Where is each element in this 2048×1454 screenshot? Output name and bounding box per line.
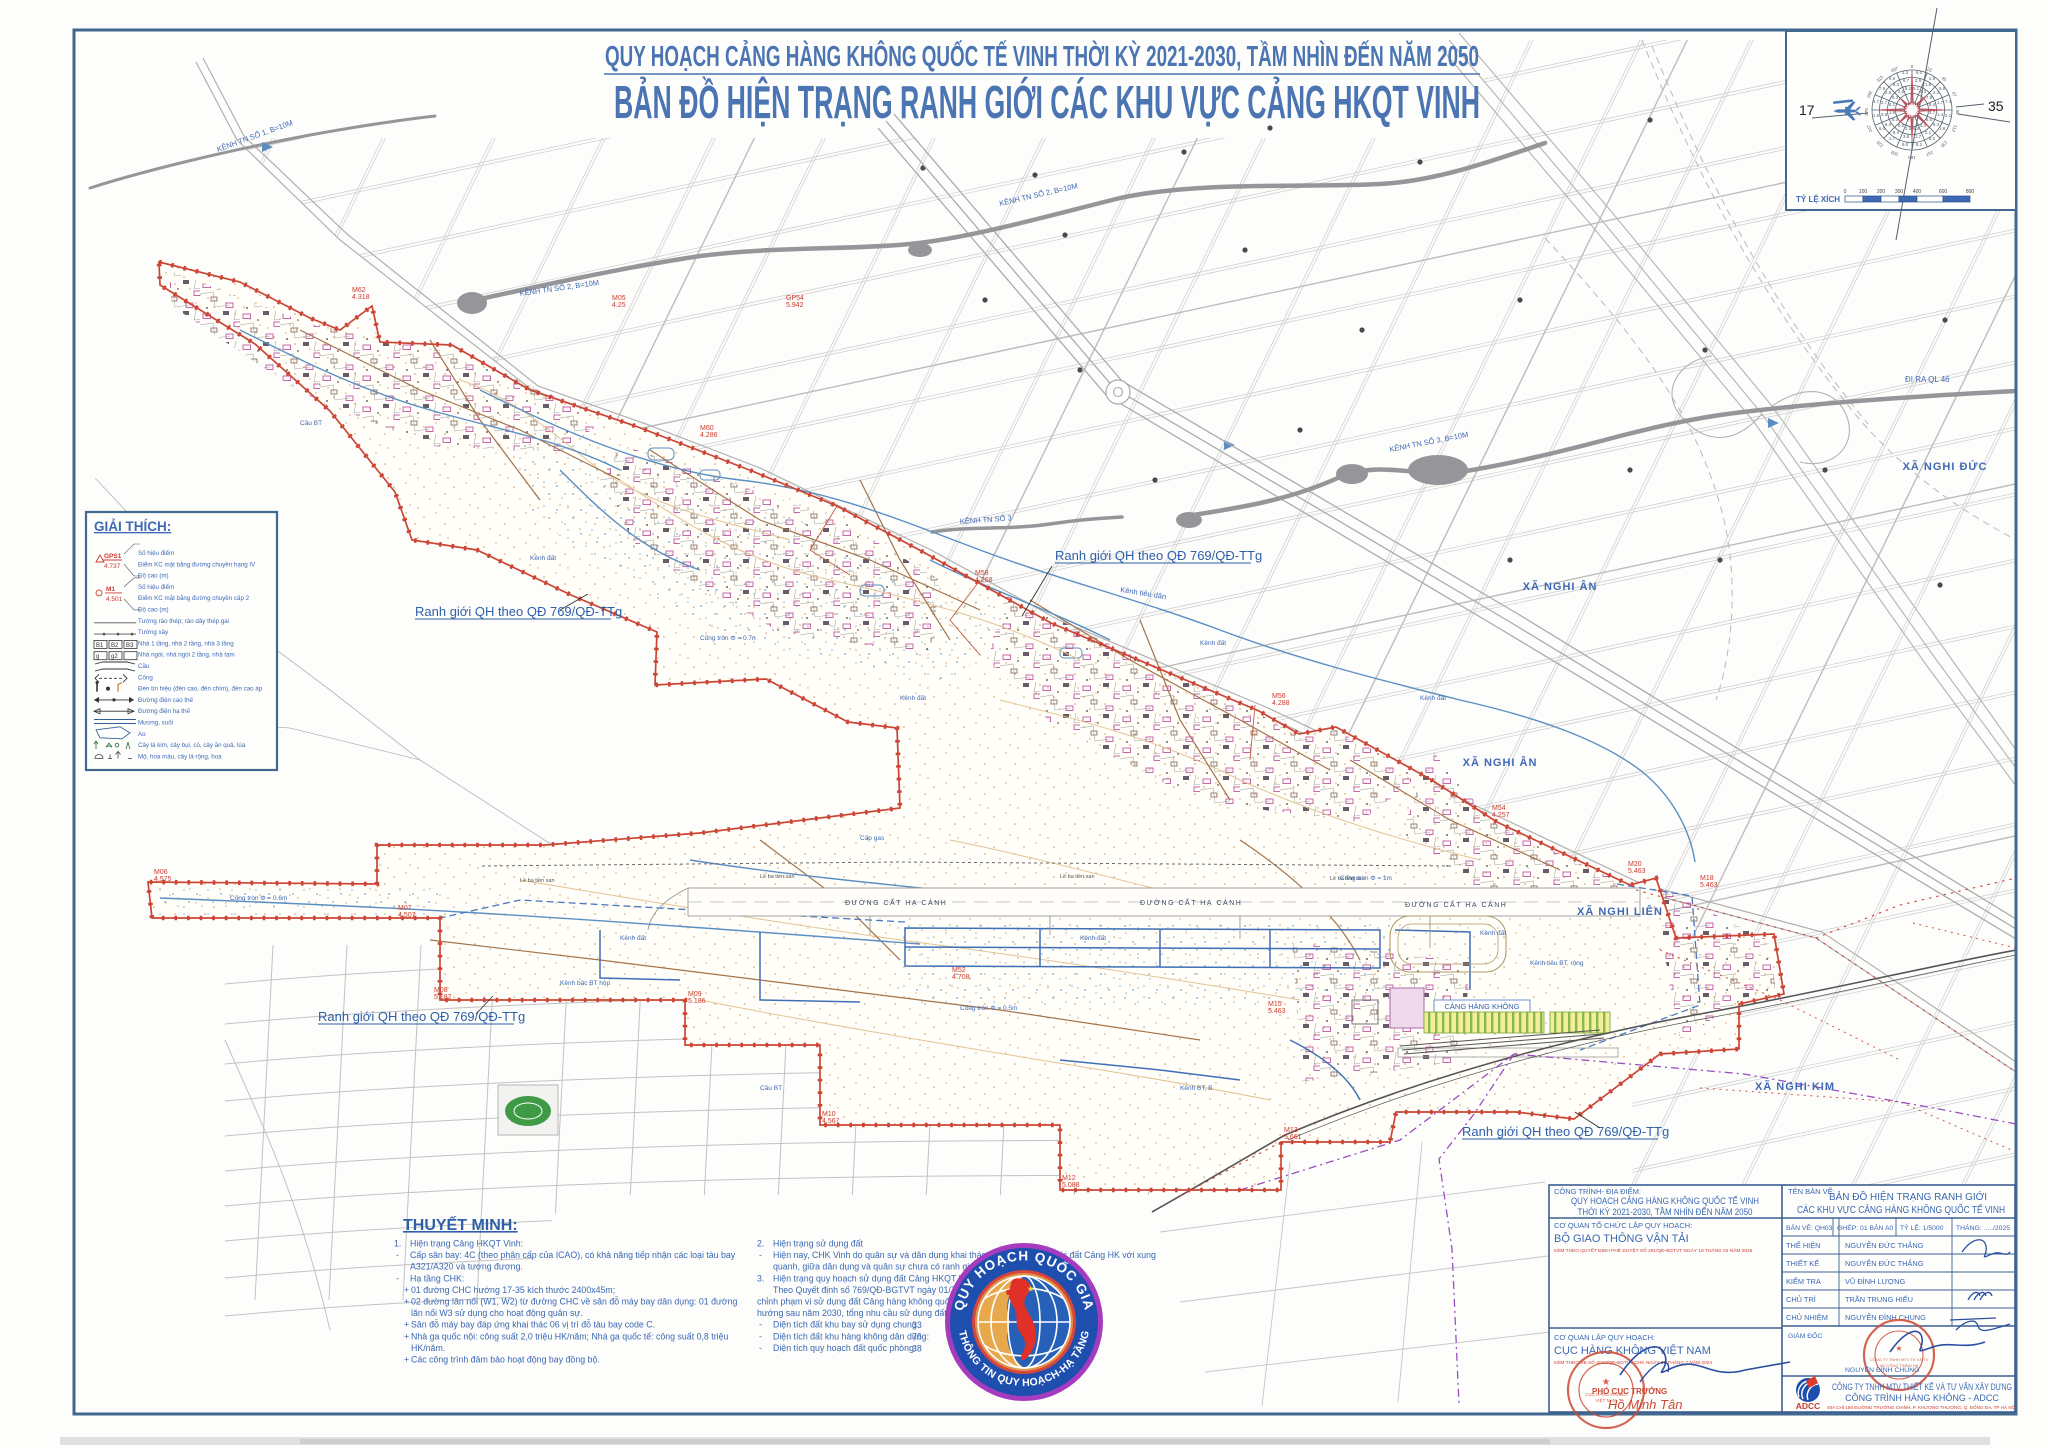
svg-text:CƠ QUAN TỔ CHỨC LẬP QUY HOẠCH:: CƠ QUAN TỔ CHỨC LẬP QUY HOẠCH:: [1554, 1221, 1692, 1230]
svg-text:CÔNG TY TNHH MTV TK VÀ TV: CÔNG TY TNHH MTV TK VÀ TV: [1870, 1357, 1929, 1362]
svg-text:ĐỊA CHỈ 180 ĐƯỜNG TRƯỜNG CHINH: ĐỊA CHỈ 180 ĐƯỜNG TRƯỜNG CHINH, P. KHƯƠN…: [1827, 1404, 2016, 1410]
svg-text:2.8: 2.8: [1885, 90, 1892, 95]
svg-text:Đèn tín hiệu (đèn cao, đèn chì: Đèn tín hiệu (đèn cao, đèn chìm), đèn ca…: [138, 686, 263, 693]
svg-text:M54: M54: [1492, 805, 1506, 812]
svg-text:M08: M08: [434, 987, 448, 994]
svg-text:CHỦ NHIỆM: CHỦ NHIỆM: [1786, 1313, 1828, 1322]
svg-text:Số hiệu điểm: Số hiệu điểm: [138, 584, 174, 591]
svg-text:M06: M06: [154, 869, 168, 876]
svg-text:5.463: 5.463: [1628, 868, 1646, 875]
svg-text:CƠ QUAN LẬP QUY HOẠCH:: CƠ QUAN LẬP QUY HOẠCH:: [1554, 1333, 1655, 1342]
svg-text:4.286: 4.286: [700, 432, 718, 439]
svg-text:TÊN BẢN VẼ:: TÊN BẢN VẼ:: [1788, 1187, 1835, 1196]
svg-text:17: 17: [1799, 102, 1815, 118]
svg-text:Điểm KC mặt bằng đường chuyền: Điểm KC mặt bằng đường chuyền hạng IV: [138, 561, 256, 568]
svg-text:4.708: 4.708: [952, 974, 970, 981]
svg-text:Diện tích quy hoạch đất quốc p: Diện tích quy hoạch đất quốc phòng:: [773, 1343, 916, 1353]
svg-text:Các công trình đảm bảo hoạt độ: Các công trình đảm bảo hoạt động bay đồn…: [411, 1355, 600, 1365]
svg-text:GIẢI THÍCH:: GIẢI THÍCH:: [94, 519, 171, 534]
svg-text:M18: M18: [1700, 875, 1714, 882]
svg-text:Mương, suối: Mương, suối: [138, 720, 173, 727]
svg-text:3.8: 3.8: [1903, 134, 1910, 139]
svg-text:GHÉP: 01 BẢN A0: GHÉP: 01 BẢN A0: [1837, 1223, 1894, 1232]
svg-text:GPS1: GPS1: [104, 553, 122, 560]
svg-text:Cấp sân bay: 4C (theo phân cấp: Cấp sân bay: 4C (theo phân cấp của ICAO)…: [410, 1250, 736, 1260]
svg-text:Số hiệu điểm: Số hiệu điểm: [138, 550, 174, 557]
svg-text:XÃ NGHI LIÊN: XÃ NGHI LIÊN: [1577, 905, 1663, 918]
svg-text:Kênh tiêu BT, rộng: Kênh tiêu BT, rộng: [1530, 960, 1584, 967]
svg-text:8.4: 8.4: [1893, 130, 1900, 135]
svg-text:3.: 3.: [757, 1273, 764, 1283]
svg-text:9.0: 9.0: [1898, 123, 1905, 128]
svg-text:B2: B2: [111, 643, 119, 649]
svg-text:Nhà ngói, nhà ngói 2 tầng, nhà: Nhà ngói, nhà ngói 2 tầng, nhà tạm: [138, 652, 235, 659]
svg-text:5.463: 5.463: [1268, 1008, 1286, 1015]
svg-text:Kênh đất: Kênh đất: [530, 553, 556, 562]
svg-text:Nhà ga quốc nội: công suất 2,0: Nhà ga quốc nội: công suất 2,0 triệu HK/…: [411, 1331, 728, 1341]
svg-text:6.3: 6.3: [1892, 95, 1899, 100]
svg-text:200: 200: [1877, 189, 1886, 195]
svg-text:TỶ LỆ: 1/5000: TỶ LỆ: 1/5000: [1900, 1223, 1944, 1232]
svg-text:-: -: [396, 1250, 399, 1260]
svg-text:100: 100: [1859, 189, 1868, 195]
svg-text:2.9: 2.9: [1915, 78, 1922, 83]
svg-text:BẢN ĐỒ HIỆN TRẠNG RANH GIỚI: BẢN ĐỒ HIỆN TRẠNG RANH GIỚI: [1829, 1190, 1987, 1203]
svg-text:Diện tích đất khu hàng không d: Diện tích đất khu hàng không dân dụng:: [773, 1331, 929, 1341]
svg-text:8.3: 8.3: [1892, 117, 1899, 122]
svg-text:★: ★: [1027, 1285, 1034, 1294]
svg-text:Tường rào thép; rào dây thép g: Tường rào thép; rào dây thép gai: [138, 618, 229, 625]
svg-text:+: +: [404, 1320, 409, 1330]
svg-text:Tường xây: Tường xây: [138, 629, 169, 636]
svg-text:CÔNG TY TNHH MTV THIẾT KẾ VÀ T: CÔNG TY TNHH MTV THIẾT KẾ VÀ TƯ VẤN XÂY …: [1832, 1382, 2012, 1392]
svg-text:5.942: 5.942: [786, 302, 804, 309]
svg-text:M56: M56: [1272, 693, 1286, 700]
svg-text:CÔNG TRÌNH HÀNG KHÔNG - ADCC: CÔNG TRÌNH HÀNG KHÔNG - ADCC: [1845, 1393, 1999, 1403]
svg-text:Kênh bậc BT hộp: Kênh bậc BT hộp: [560, 980, 610, 987]
svg-text:Hiện nay, CHK Vinh do quân sự: Hiện nay, CHK Vinh do quân sự và dân dụn…: [773, 1250, 1156, 1260]
svg-text:Đường điện cao thế: Đường điện cao thế: [138, 697, 194, 704]
svg-text:7.4: 7.4: [1945, 99, 1952, 104]
svg-text:TRẦN TRUNG HIẾU: TRẦN TRUNG HIẾU: [1845, 1294, 1913, 1304]
svg-text:5.463: 5.463: [1700, 882, 1718, 889]
svg-text:XÃ NGHI ĐỨC: XÃ NGHI ĐỨC: [1903, 460, 1988, 473]
svg-text:2.7: 2.7: [1881, 100, 1888, 105]
svg-text:180: 180: [1908, 155, 1916, 160]
svg-text:XÃ NGHI ÂN: XÃ NGHI ÂN: [1463, 756, 1538, 769]
svg-text:THÁNG: ...../2025: THÁNG: ...../2025: [1956, 1223, 2010, 1232]
svg-text:1.7: 1.7: [1915, 134, 1922, 139]
svg-text:Cống tròn Φ = 1m: Cống tròn Φ = 1m: [1340, 873, 1392, 882]
svg-text:270: 270: [1864, 108, 1869, 116]
svg-text:Độ cao (m): Độ cao (m): [138, 573, 169, 580]
svg-text:-: -: [759, 1331, 762, 1341]
svg-text:6.0: 6.0: [1879, 126, 1886, 131]
svg-text:BẢN VẼ: QH03: BẢN VẼ: QH03: [1786, 1223, 1833, 1232]
svg-text:Đường điện hạ thế: Đường điện hạ thế: [138, 708, 190, 715]
svg-text:Sân đỗ máy bay đáp ứng khai th: Sân đỗ máy bay đáp ứng khai thác 06 vị t…: [411, 1320, 655, 1330]
svg-text:Ranh giới QH theo QĐ 769/QĐ-TT: Ranh giới QH theo QĐ 769/QĐ-TTg: [415, 604, 622, 619]
svg-text:lăn nối W3 sử dụng cho hoạt độ: lăn nối W3 sử dụng cho hoạt động quân sự…: [411, 1308, 583, 1318]
svg-text:1.7: 1.7: [1937, 100, 1944, 105]
svg-text:Diện tích đất khu bay sử dụng: Diện tích đất khu bay sử dụng chung:: [773, 1320, 919, 1330]
svg-text:XÃ NGHI ÂN: XÃ NGHI ÂN: [1523, 580, 1598, 593]
svg-text:Lề ba tiền san: Lề ba tiền san: [760, 874, 795, 880]
svg-text:Hiện trạng Cảng HKQT Vinh:: Hiện trạng Cảng HKQT Vinh:: [410, 1239, 523, 1249]
svg-text:3.7: 3.7: [1929, 110, 1936, 115]
svg-text:CÁC KHU VỰC CẢNG HÀNG KHÔNG QU: CÁC KHU VỰC CẢNG HÀNG KHÔNG QUỐC TẾ VINH: [1797, 1202, 2005, 1216]
svg-text:3.8: 3.8: [1881, 112, 1888, 117]
svg-text:1.7: 1.7: [1889, 136, 1896, 141]
svg-text:Hồ Minh Tân: Hồ Minh Tân: [1608, 1397, 1682, 1412]
svg-text:quanh, giữa dân dụng và quân s: quanh, giữa dân dụng và quân sự chưa có …: [773, 1262, 979, 1272]
svg-text:Hiện trạng sử dụng đất: Hiện trạng sử dụng đất: [773, 1239, 864, 1249]
svg-text:Ranh giới QH theo QĐ 769/QĐ-TT: Ranh giới QH theo QĐ 769/QĐ-TTg: [1462, 1124, 1669, 1139]
svg-text:Cấp gas: Cấp gas: [860, 833, 885, 842]
svg-text:Cống tròn Φ = 0.7n: Cống tròn Φ = 0.7n: [700, 633, 756, 642]
svg-text:1.5: 1.5: [1873, 113, 1880, 118]
svg-text:9.7: 9.7: [1903, 78, 1910, 83]
svg-text:★: ★: [1895, 1344, 1902, 1353]
svg-text:Kênh đất: Kênh đất: [1200, 638, 1226, 647]
svg-text:4.0: 4.0: [1920, 123, 1927, 128]
svg-text:4.257: 4.257: [1492, 812, 1510, 819]
svg-text:33: 33: [912, 1320, 922, 1330]
svg-text:4.9: 4.9: [1889, 76, 1896, 81]
svg-text:8.3: 8.3: [1893, 82, 1900, 87]
svg-text:8.1: 8.1: [1905, 86, 1912, 91]
svg-text:+: +: [404, 1331, 409, 1341]
svg-text:NGUYỄN ĐỨC THẮNG: NGUYỄN ĐỨC THẮNG: [1845, 1241, 1924, 1250]
svg-text:9.3: 9.3: [1920, 89, 1927, 94]
svg-text:4.7: 4.7: [1873, 99, 1880, 104]
svg-text:8.1: 8.1: [1889, 102, 1896, 107]
svg-text:M13: M13: [1284, 1127, 1298, 1134]
svg-text:6.0: 6.0: [1916, 70, 1923, 75]
svg-text:TỶ LỆ XÍCH: TỶ LỆ XÍCH: [1796, 195, 1840, 204]
svg-text:Ranh giới QH theo QĐ 769/QĐ-TT: Ranh giới QH theo QĐ 769/QĐ-TTg: [1055, 548, 1262, 563]
svg-text:-: -: [759, 1343, 762, 1353]
svg-text:B1: B1: [96, 643, 104, 649]
svg-text:KIỂM TRA: KIỂM TRA: [1786, 1277, 1821, 1286]
svg-text:76: 76: [912, 1332, 922, 1342]
svg-text:Kênh BT, B: Kênh BT, B: [1180, 1085, 1213, 1092]
svg-text:6.4: 6.4: [1913, 126, 1920, 131]
svg-text:Lề ba tiền san: Lề ba tiền san: [520, 878, 555, 884]
svg-text:7.8: 7.8: [1926, 95, 1933, 100]
svg-text:4.501: 4.501: [106, 596, 123, 603]
svg-text:4.737: 4.737: [104, 563, 121, 570]
svg-text:M09: M09: [688, 991, 702, 998]
svg-text:Nhà 1 tầng, nhà 2 tầng, nhà 3: Nhà 1 tầng, nhà 2 tầng, nhà 3 tầng: [138, 640, 234, 647]
svg-text:5.186: 5.186: [688, 998, 706, 1005]
svg-text:5.1: 5.1: [1913, 86, 1920, 91]
svg-text:1.9: 1.9: [1929, 76, 1936, 81]
svg-text:ADCC: ADCC: [1796, 1401, 1821, 1411]
svg-text:QUY HOẠCH CẢNG HÀNG KHÔNG QUỐC: QUY HOẠCH CẢNG HÀNG KHÔNG QUỐC TẾ VINH: [1571, 1195, 1759, 1207]
svg-text:XÃ NGHI KIM: XÃ NGHI KIM: [1755, 1080, 1835, 1093]
svg-text:Kênh đất: Kênh đất: [620, 933, 646, 942]
svg-text:BỘ GIAO THÔNG VẬN TẢI: BỘ GIAO THÔNG VẬN TẢI: [1554, 1232, 1689, 1245]
svg-text:4.288: 4.288: [1272, 700, 1290, 707]
svg-text:4.318: 4.318: [352, 294, 370, 301]
svg-text:NGUYỄN ĐỨC THẮNG: NGUYỄN ĐỨC THẮNG: [1845, 1259, 1924, 1268]
svg-text:400: 400: [1913, 189, 1922, 195]
svg-text:g2: g2: [111, 654, 118, 660]
svg-text:M05: M05: [612, 295, 626, 302]
svg-text:38: 38: [912, 1343, 922, 1353]
svg-text:ĐI RA QL 46: ĐI RA QL 46: [1905, 375, 1950, 384]
svg-text:-: -: [759, 1320, 762, 1330]
svg-text:1.6: 1.6: [1925, 82, 1932, 87]
svg-text:PHÓ CỤC TRƯỞNG: PHÓ CỤC TRƯỞNG: [1592, 1387, 1667, 1396]
svg-text:THUYẾT MINH:: THUYẾT MINH:: [403, 1215, 518, 1234]
svg-text:Cầu BT: Cầu BT: [300, 418, 322, 427]
svg-text:CÔNG TRÌNH- ĐỊA ĐIỂM:: CÔNG TRÌNH- ĐỊA ĐIỂM:: [1554, 1187, 1641, 1196]
svg-text:HK/năm.: HK/năm.: [411, 1343, 445, 1353]
svg-text:4.268: 4.268: [975, 577, 993, 584]
svg-text:Kênh đất: Kênh đất: [1080, 933, 1106, 942]
svg-text:8.2: 8.2: [1916, 142, 1923, 147]
svg-text:QUY HOẠCH CẢNG HÀNG KHÔNG QUỐC: QUY HOẠCH CẢNG HÀNG KHÔNG QUỐC TẾ VINH T…: [605, 39, 1479, 73]
svg-text:Cầu BT: Cầu BT: [760, 1083, 782, 1092]
svg-text:Hiện trạng quy hoạch sử dụng đ: Hiện trạng quy hoạch sử dụng đất Cảng HK…: [773, 1273, 979, 1283]
svg-text:1.4: 1.4: [1937, 112, 1944, 117]
svg-text:Kênh đất: Kênh đất: [1420, 693, 1446, 702]
svg-text:Độ cao (m): Độ cao (m): [138, 607, 169, 614]
svg-text:5.6: 5.6: [1939, 86, 1946, 91]
svg-text:Ranh giới QH theo QĐ 769/QĐ-TT: Ranh giới QH theo QĐ 769/QĐ-TTg: [318, 1009, 525, 1024]
svg-text:02 đường lăn nối (W1, W2) từ đ: 02 đường lăn nối (W1, W2) từ đường CHC v…: [411, 1297, 738, 1307]
svg-text:1.: 1.: [394, 1239, 401, 1249]
svg-text:4.507: 4.507: [398, 912, 416, 919]
svg-text:2.1: 2.1: [1945, 113, 1952, 118]
svg-text:THIẾT KẾ: THIẾT KẾ: [1786, 1258, 1819, 1268]
svg-text:8.4: 8.4: [1885, 122, 1892, 127]
svg-text:THỂ HIỆN: THỂ HIỆN: [1786, 1241, 1821, 1250]
svg-text:Cống tròn Φ = 0.6m: Cống tròn Φ = 0.6m: [230, 893, 287, 902]
svg-text:g: g: [96, 654, 99, 660]
svg-text:5.661: 5.661: [1284, 1134, 1302, 1141]
svg-text:01 đường CHC hướng 17-35 kích: 01 đường CHC hướng 17-35 kích thước 2400…: [411, 1285, 615, 1295]
svg-text:CẢNG HÀNG KHÔNG: CẢNG HÀNG KHÔNG: [1444, 1002, 1519, 1011]
svg-text:Lề ba tiền san: Lề ba tiền san: [1060, 874, 1095, 880]
svg-text:6.5: 6.5: [1926, 117, 1933, 122]
svg-text:M20: M20: [1628, 861, 1642, 868]
svg-text:Cây lá kim, cây bụi, cỏ, cây ă: Cây lá kim, cây bụi, cỏ, cây ăn quả, lúa: [138, 742, 246, 749]
svg-text:4.567: 4.567: [822, 1118, 840, 1125]
svg-text:5.182: 5.182: [434, 994, 452, 1001]
svg-text:BẢN ĐỒ HIỆN TRẠNG RANH GIỚI CÁ: BẢN ĐỒ HIỆN TRẠNG RANH GIỚI CÁC KHU VỰC …: [614, 76, 1480, 128]
svg-text:NGUYỄN ĐÌNH CHUNG: NGUYỄN ĐÌNH CHUNG: [1845, 1365, 1919, 1374]
svg-text:M1: M1: [106, 586, 115, 593]
svg-text:Mộ, hoa màu, cây lá rộng, hoa: Mộ, hoa màu, cây lá rộng, hoa: [138, 753, 222, 760]
svg-text:M58: M58: [975, 570, 989, 577]
svg-text:1.6: 1.6: [1889, 110, 1896, 115]
svg-text:M15: M15: [1268, 1001, 1282, 1008]
svg-text:-: -: [759, 1250, 762, 1260]
svg-text:Cống: Cống: [138, 674, 153, 681]
svg-text:300: 300: [1895, 189, 1904, 195]
svg-text:-: -: [396, 1273, 399, 1283]
svg-text:2.5: 2.5: [1905, 126, 1912, 131]
svg-text:Hạ tầng CHK:: Hạ tầng CHK:: [410, 1273, 464, 1283]
svg-text:Cầu: Cầu: [138, 663, 150, 670]
svg-text:A321/A320 và tương đương.: A321/A320 và tương đương.: [410, 1262, 523, 1272]
svg-text:VŨ ĐÌNH LƯỢNG: VŨ ĐÌNH LƯỢNG: [1845, 1277, 1906, 1286]
svg-text:800: 800: [1966, 189, 1975, 195]
svg-text:5.088: 5.088: [1062, 1182, 1080, 1189]
svg-text:3.3: 3.3: [1902, 70, 1909, 75]
svg-text:1.8: 1.8: [1939, 126, 1946, 131]
svg-text:CHỦ TRÌ: CHỦ TRÌ: [1786, 1295, 1816, 1304]
svg-text:+: +: [404, 1285, 409, 1295]
svg-text:4.25: 4.25: [612, 302, 626, 309]
svg-text:Ao: Ao: [138, 731, 146, 738]
svg-text:+: +: [404, 1297, 409, 1307]
svg-text:M52: M52: [952, 967, 966, 974]
svg-text:2.1: 2.1: [1925, 130, 1932, 135]
svg-text:M60: M60: [700, 425, 714, 432]
svg-text:M07: M07: [398, 905, 412, 912]
svg-text:35: 35: [1988, 98, 2004, 114]
svg-text:4.575: 4.575: [154, 876, 172, 883]
svg-text:2.5: 2.5: [1898, 89, 1905, 94]
svg-text:Kênh đất: Kênh đất: [900, 693, 926, 702]
svg-text:8.0: 8.0: [1929, 136, 1936, 141]
svg-text:M10: M10: [822, 1111, 836, 1118]
svg-text:Điểm KC mặt bằng đường chuyền: Điểm KC mặt bằng đường chuyền cấp 2: [138, 595, 250, 602]
svg-text:B3: B3: [126, 643, 134, 649]
svg-text:Kênh đất: Kênh đất: [1480, 928, 1506, 937]
svg-text:2.: 2.: [757, 1239, 764, 1249]
svg-text:Cống tròn Φ = 0.5m: Cống tròn Φ = 0.5m: [960, 1003, 1017, 1012]
svg-text:CỤC HÀNG KHÔNG VIỆT NAM: CỤC HÀNG KHÔNG VIỆT NAM: [1554, 1344, 1711, 1357]
svg-text:NGUYỄN ĐÌNH CHUNG: NGUYỄN ĐÌNH CHUNG: [1845, 1313, 1926, 1322]
svg-text:0: 0: [1844, 189, 1847, 195]
svg-text:+: +: [404, 1355, 409, 1365]
svg-text:GP54: GP54: [786, 295, 804, 302]
svg-text:8.4: 8.4: [1929, 102, 1936, 107]
svg-text:M62: M62: [352, 287, 366, 294]
svg-text:600: 600: [1939, 189, 1948, 195]
svg-text:THỜI KỲ 2021-2030, TẦM NHÌN ĐẾ: THỜI KỲ 2021-2030, TẦM NHÌN ĐẾN NĂM 2050: [1578, 1207, 1753, 1218]
svg-text:7.9: 7.9: [1879, 86, 1886, 91]
svg-text:M12: M12: [1062, 1175, 1076, 1182]
svg-text:9.0: 9.0: [1902, 142, 1909, 147]
